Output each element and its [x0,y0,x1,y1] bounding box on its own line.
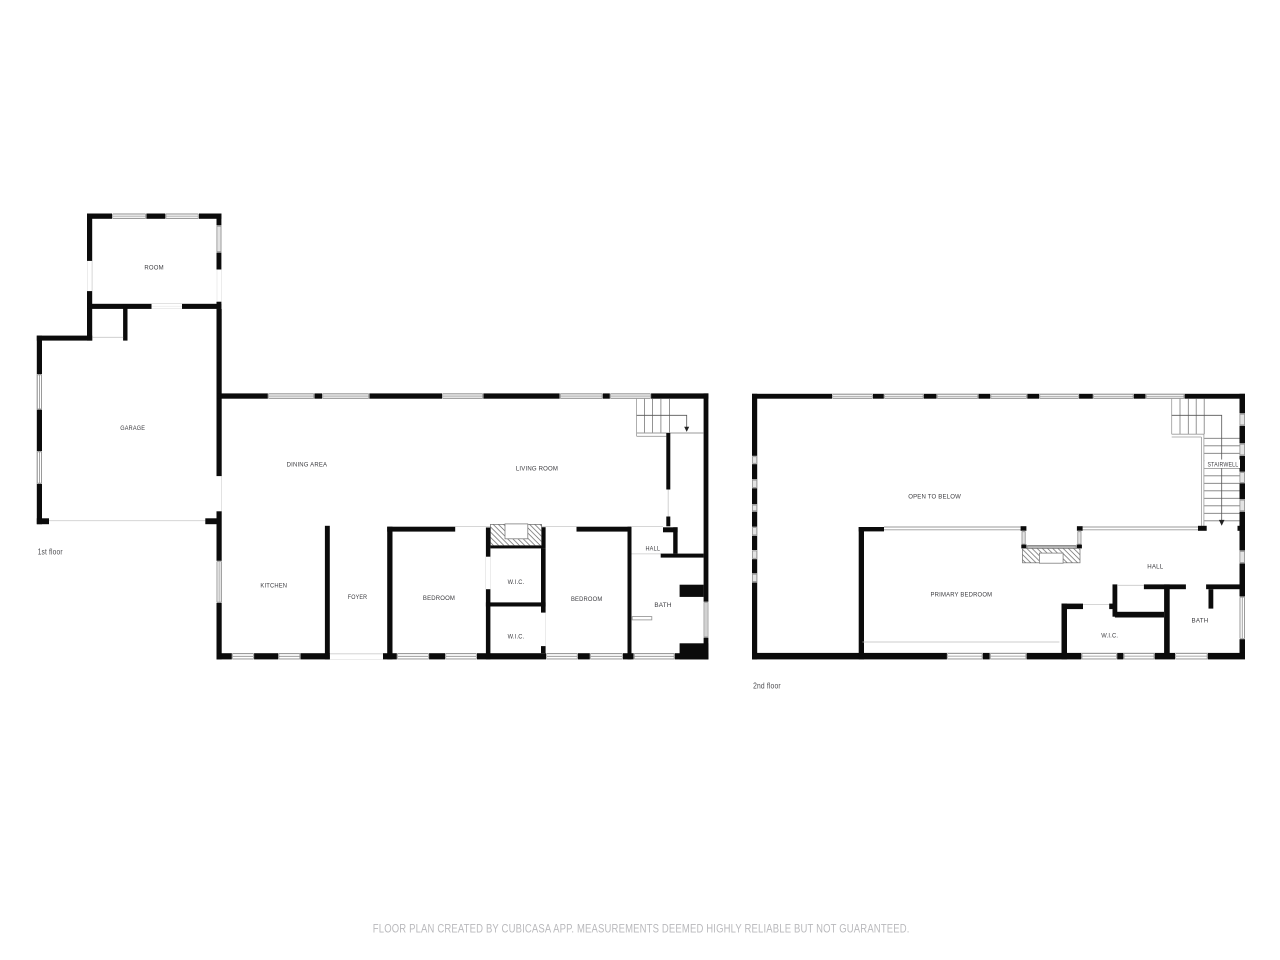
svg-text:ROOM: ROOM [144,265,164,272]
svg-text:GARAGE: GARAGE [120,425,145,432]
svg-text:1st floor: 1st floor [38,548,63,557]
svg-text:FOYER: FOYER [348,594,368,601]
svg-text:BATH: BATH [1192,617,1209,624]
svg-text:W.I.C.: W.I.C. [1101,633,1118,640]
svg-text:FLOOR PLAN CREATED BY CUBICASA: FLOOR PLAN CREATED BY CUBICASA APP. MEAS… [373,924,910,936]
svg-text:BEDROOM: BEDROOM [571,596,603,603]
svg-text:LIVING ROOM: LIVING ROOM [516,466,558,473]
svg-text:BATH: BATH [654,602,671,609]
svg-text:PRIMARY BEDROOM: PRIMARY BEDROOM [931,592,993,599]
svg-text:HALL: HALL [1147,563,1163,570]
svg-text:W.I.C.: W.I.C. [508,579,525,586]
svg-text:2nd floor: 2nd floor [753,681,781,690]
svg-text:W.I.C.: W.I.C. [508,633,525,640]
svg-text:STAIRWELL: STAIRWELL [1208,462,1239,469]
svg-text:OPEN TO BELOW: OPEN TO BELOW [908,493,961,500]
svg-text:BEDROOM: BEDROOM [423,595,455,602]
svg-text:DINING AREA: DINING AREA [287,461,328,468]
svg-text:KITCHEN: KITCHEN [260,583,287,590]
svg-text:HALL: HALL [646,545,661,552]
